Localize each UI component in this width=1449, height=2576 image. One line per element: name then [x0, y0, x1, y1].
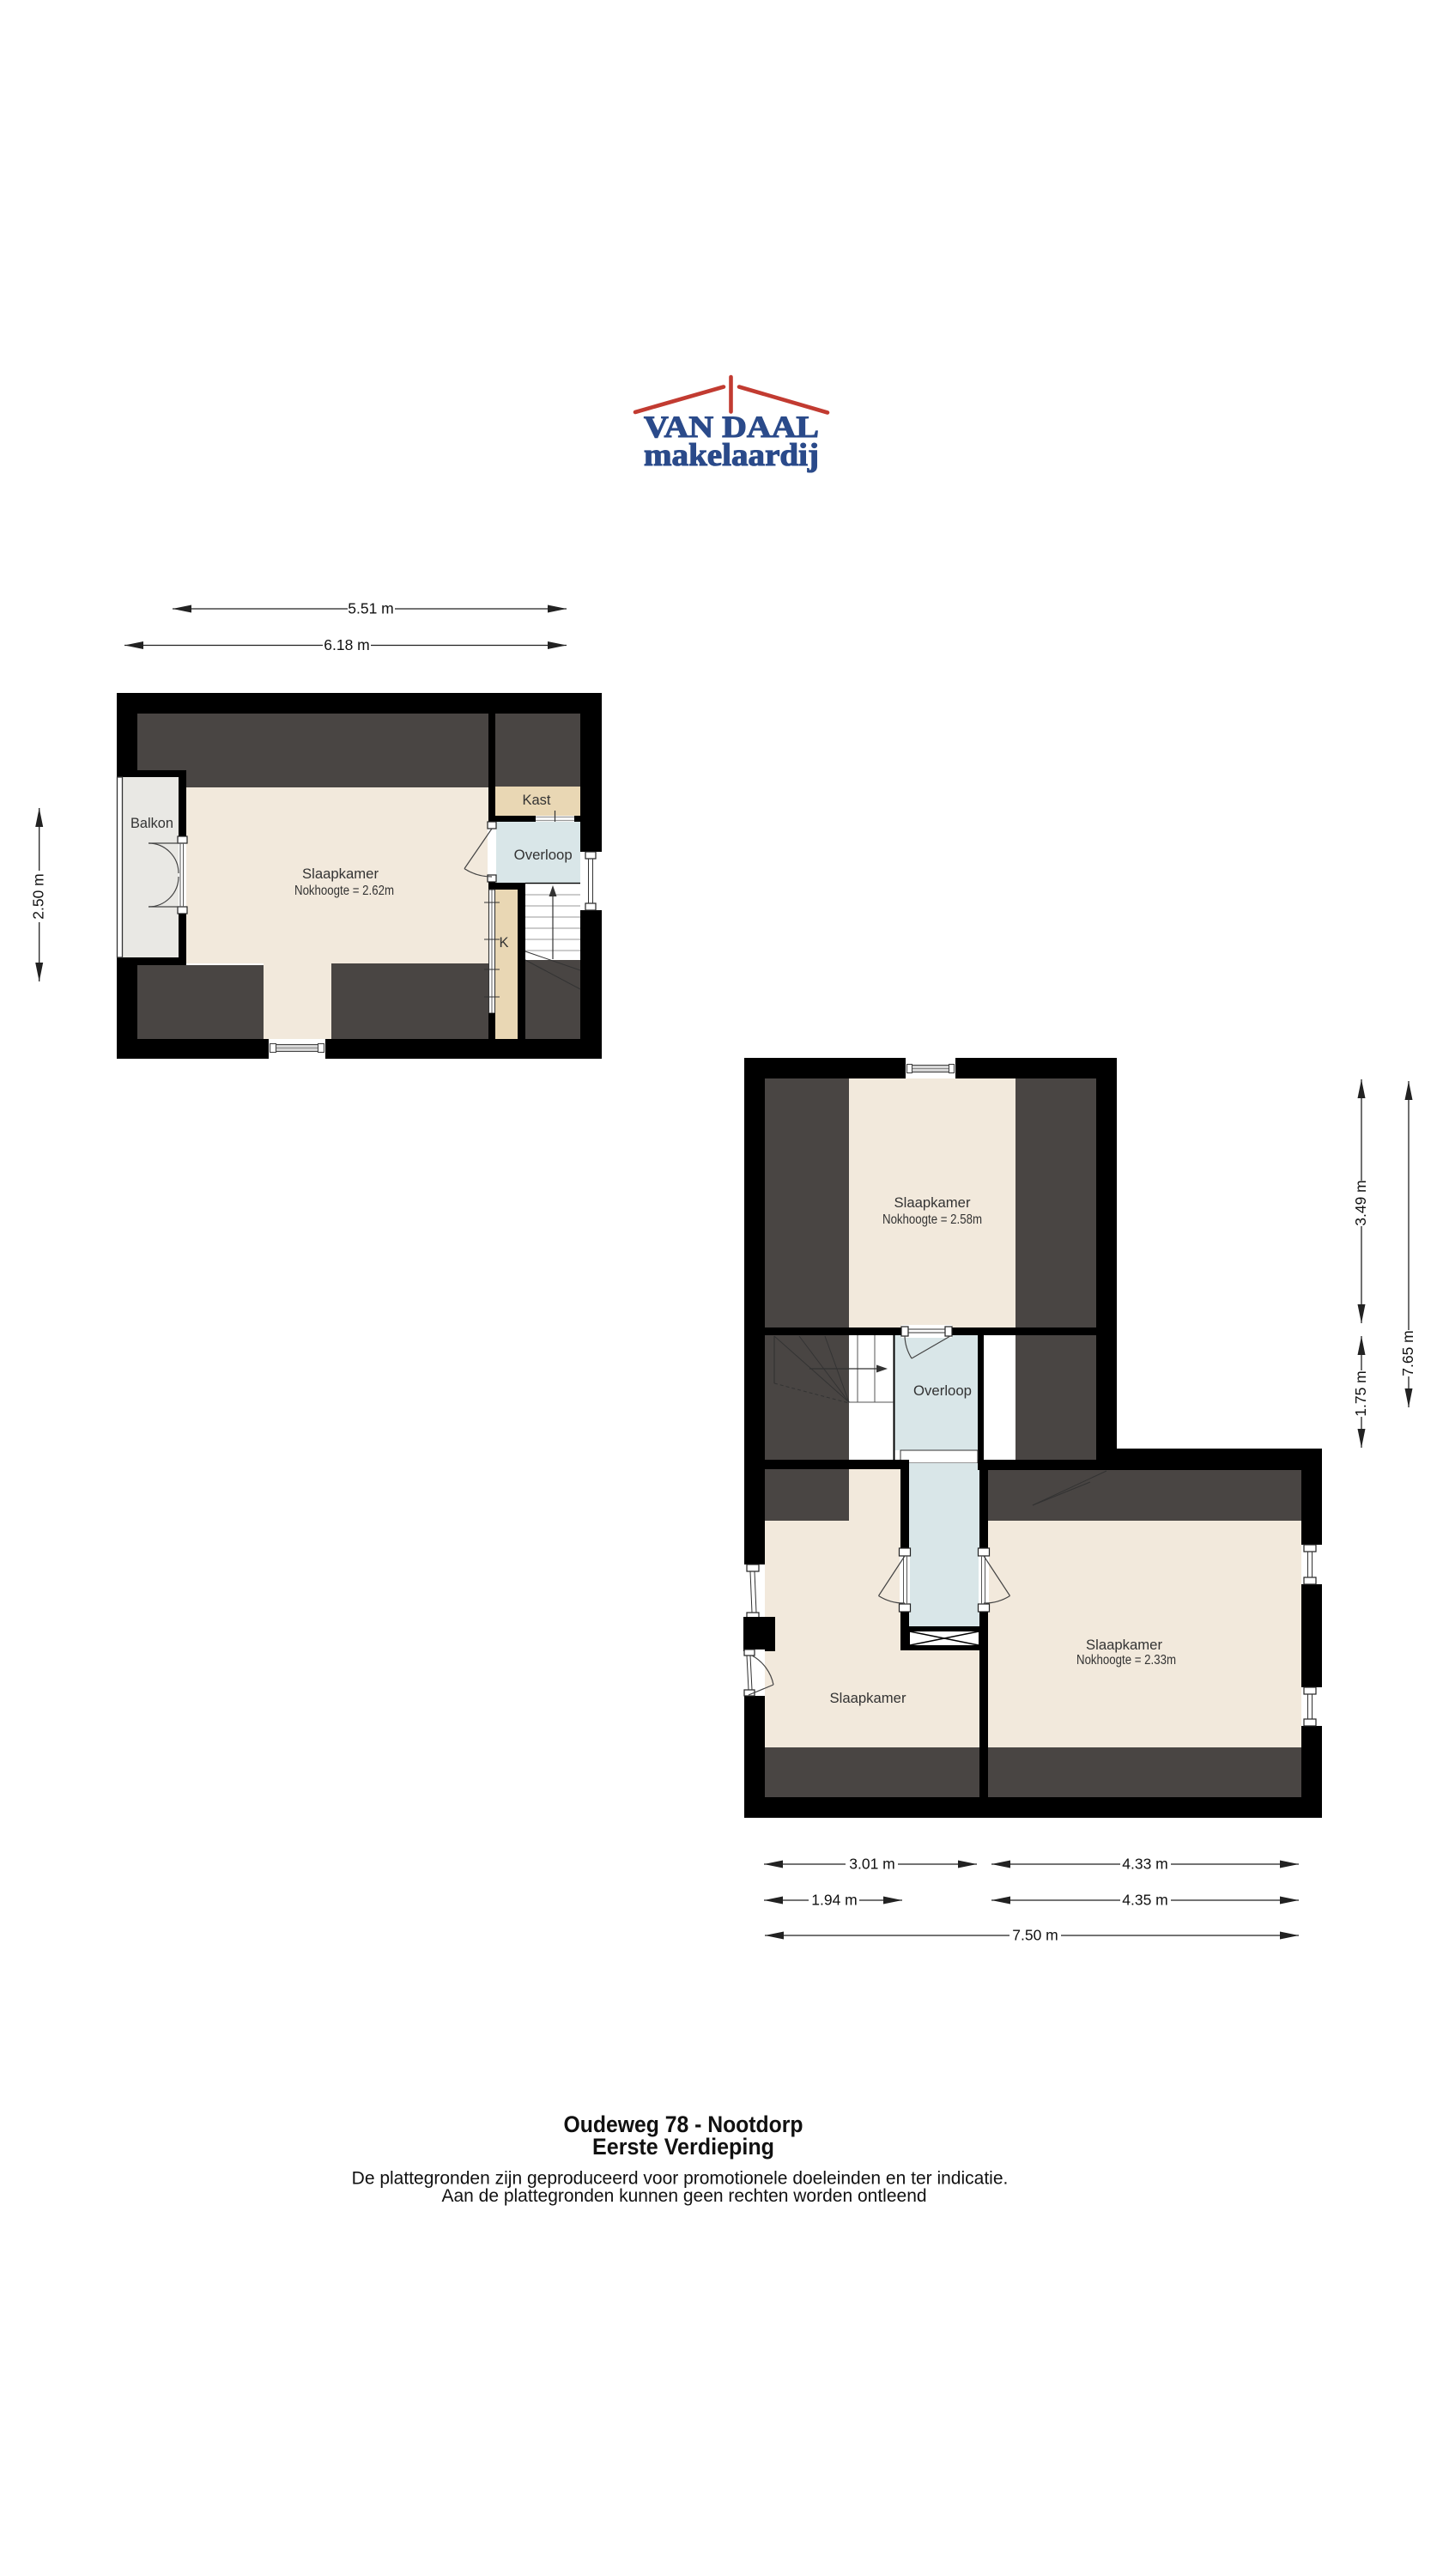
svg-text:Nokhoogte = 2.33m: Nokhoogte = 2.33m — [1076, 1653, 1176, 1668]
svg-text:3.49 m: 3.49 m — [1352, 1180, 1369, 1226]
svg-text:5.51 m: 5.51 m — [348, 600, 394, 617]
svg-text:6.18 m: 6.18 m — [324, 636, 370, 653]
svg-text:Balkon: Balkon — [130, 816, 173, 831]
svg-text:Overloop: Overloop — [514, 848, 573, 863]
svg-text:7.65 m: 7.65 m — [1399, 1330, 1416, 1376]
svg-text:Slaapkamer: Slaapkamer — [894, 1195, 972, 1211]
svg-text:makelaardij: makelaardij — [644, 438, 819, 473]
svg-text:4.33 m: 4.33 m — [1122, 1856, 1168, 1873]
svg-text:Eerste Verdieping: Eerste Verdieping — [592, 2134, 774, 2160]
svg-text:Nokhoogte = 2.58m: Nokhoogte = 2.58m — [882, 1212, 982, 1227]
svg-text:Kast: Kast — [523, 793, 551, 808]
svg-text:Slaapkamer: Slaapkamer — [830, 1691, 907, 1706]
svg-text:Nokhoogte = 2.62m: Nokhoogte = 2.62m — [294, 884, 394, 898]
svg-text:1.75 m: 1.75 m — [1352, 1370, 1369, 1417]
svg-text:7.50 m: 7.50 m — [1012, 1927, 1058, 1944]
svg-text:K: K — [499, 935, 508, 951]
svg-text:Aan de plattegronden kunnen ge: Aan de plattegronden kunnen geen rechten… — [441, 2186, 926, 2206]
svg-text:Slaapkamer: Slaapkamer — [302, 866, 379, 882]
svg-text:4.35 m: 4.35 m — [1122, 1892, 1168, 1909]
svg-text:2.50 m: 2.50 m — [30, 873, 47, 920]
svg-text:3.01 m: 3.01 m — [849, 1856, 895, 1873]
svg-text:Overloop: Overloop — [913, 1383, 972, 1399]
svg-text:1.94 m: 1.94 m — [811, 1892, 858, 1909]
svg-text:Slaapkamer: Slaapkamer — [1086, 1637, 1163, 1653]
